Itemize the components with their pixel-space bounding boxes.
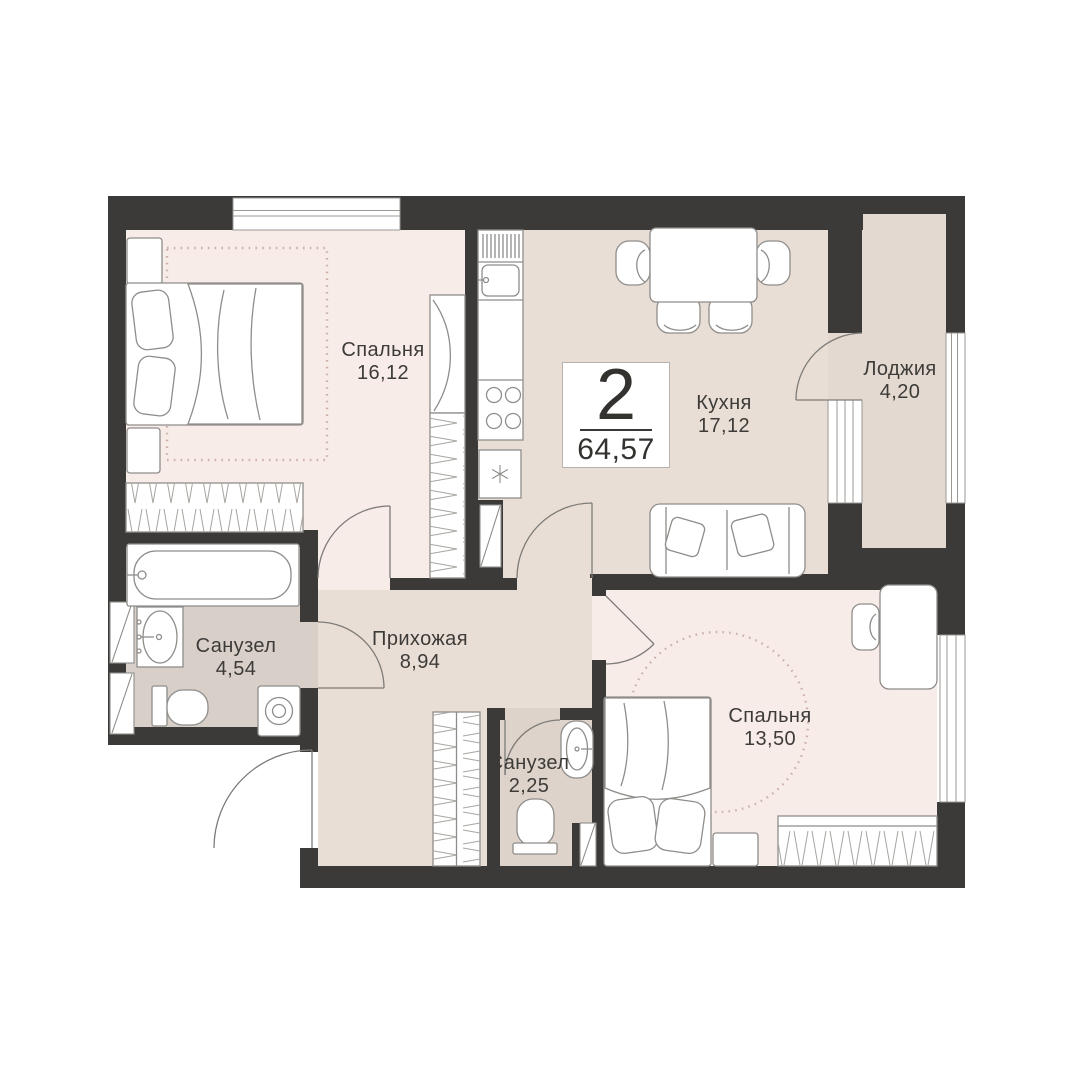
- shaft-bath2: [580, 823, 596, 866]
- wall-hall-top-b: [390, 578, 517, 590]
- pillow: [133, 355, 177, 417]
- wall-bedroom2-right-upper: [937, 590, 965, 635]
- sofa: [650, 504, 805, 577]
- wall-bath1-right-lower: [300, 688, 318, 745]
- opening-bathroom-2: [505, 708, 560, 720]
- single-bed: [604, 697, 711, 866]
- room-label-hallway: Прихожая 8,94: [372, 628, 468, 673]
- faucet: [484, 278, 489, 283]
- pillow: [654, 797, 707, 855]
- room-area: 4,54: [196, 658, 277, 680]
- floor-loggia-doorway: [828, 333, 862, 400]
- room-area: 17,12: [696, 415, 752, 437]
- wall-bedroom2-right-lower: [937, 802, 965, 866]
- room-area: 16,12: [341, 362, 424, 384]
- wall-bottom: [300, 866, 965, 888]
- bathroom-sink: [137, 607, 183, 667]
- badge-divider: [580, 429, 652, 431]
- room-area: 4,20: [863, 381, 936, 403]
- door-entrance: [214, 750, 312, 848]
- window-bedroom-2: [940, 635, 965, 802]
- desk-chair: [852, 604, 879, 650]
- opening-kitchen: [517, 578, 592, 590]
- room-label-bathroom-1: Санузел 4,54: [196, 635, 277, 680]
- wall-bath1-right-upper: [300, 530, 318, 622]
- toilet: [513, 799, 557, 854]
- wall-top: [108, 196, 863, 230]
- sofa-pillow: [730, 513, 775, 558]
- shaft-left-1: [110, 602, 134, 663]
- floor-plan-canvas: Спальня 16,12 Кухня 17,12 Лоджия 4,20 Са…: [0, 0, 1080, 1080]
- wall-loggia-bottom: [862, 548, 946, 590]
- rooms-count: 2: [596, 365, 636, 425]
- apartment-summary-badge: 2 64,57: [562, 362, 670, 468]
- shaft-left-2: [110, 673, 134, 734]
- room-name: Спальня: [728, 705, 811, 727]
- opening-bedroom-1: [318, 578, 390, 590]
- toilet: [152, 686, 208, 726]
- room-label-kitchen: Кухня 17,12: [696, 392, 752, 437]
- room-label-bedroom-1: Спальня 16,12: [341, 339, 424, 384]
- refrigerator: [479, 450, 521, 498]
- wall-bath2-top-a: [487, 708, 505, 720]
- room-area: 2,25: [489, 775, 570, 797]
- wall-bedroom1-kitchen: [465, 230, 478, 578]
- nightstand: [713, 833, 758, 866]
- wall-right-upper: [946, 196, 965, 333]
- room-name: Спальня: [341, 339, 424, 361]
- pillow: [606, 795, 659, 855]
- wardrobe-bedroom-2: [778, 816, 937, 866]
- wall-hall-top-a: [310, 578, 318, 590]
- blanket: [188, 284, 302, 424]
- pillow: [131, 289, 175, 351]
- wall-bath2-top-b: [560, 708, 606, 720]
- wall-entry-jamb-bottom: [300, 848, 318, 866]
- wardrobe-hallway: [433, 712, 480, 866]
- chair: [616, 241, 650, 285]
- room-name: Санузел: [196, 635, 277, 657]
- nightstand: [127, 238, 162, 284]
- room-area: 8,94: [372, 651, 468, 673]
- washing-machine: [258, 686, 300, 736]
- double-bed: [126, 283, 303, 425]
- room-label-loggia: Лоджия 4,20: [863, 358, 936, 403]
- wall-right-mid: [946, 503, 965, 590]
- desk: [880, 585, 937, 689]
- floor-plan-drawing: [0, 0, 1080, 1080]
- wall-bath2-shaft-nub: [572, 823, 580, 866]
- bathtub: [127, 544, 299, 606]
- wall-kitchen-loggia-lower: [828, 503, 862, 578]
- room-area: 13,50: [728, 728, 811, 750]
- wall-kitchen-loggia-upper: [828, 196, 862, 333]
- blanket: [605, 698, 710, 799]
- room-name: Кухня: [696, 392, 752, 414]
- window-kitchen-loggia: [828, 400, 862, 503]
- opening-bedroom-2: [592, 596, 606, 660]
- dining-table: [650, 228, 757, 302]
- shaft-kitchen: [480, 505, 501, 567]
- total-area: 64,57: [577, 434, 655, 466]
- window-bedroom-1: [233, 198, 400, 230]
- wardrobe-bedroom-1-column: [430, 295, 465, 578]
- chair: [756, 241, 790, 285]
- opening-bathroom-1: [300, 622, 318, 688]
- room-label-bathroom-2: Санузел 2,25: [489, 752, 570, 797]
- room-name: Санузел: [489, 752, 570, 774]
- nightstand: [127, 428, 160, 473]
- kitchen-counter: [478, 230, 523, 440]
- wall-bedroom2-left-nub: [592, 590, 606, 596]
- room-name: Лоджия: [863, 358, 936, 380]
- window-loggia-right: [946, 333, 965, 503]
- room-name: Прихожая: [372, 628, 468, 650]
- room-label-bedroom-2: Спальня 13,50: [728, 705, 811, 750]
- wall-loggia-top: [863, 196, 946, 214]
- wardrobe-bedroom-1-bottom: [126, 483, 303, 532]
